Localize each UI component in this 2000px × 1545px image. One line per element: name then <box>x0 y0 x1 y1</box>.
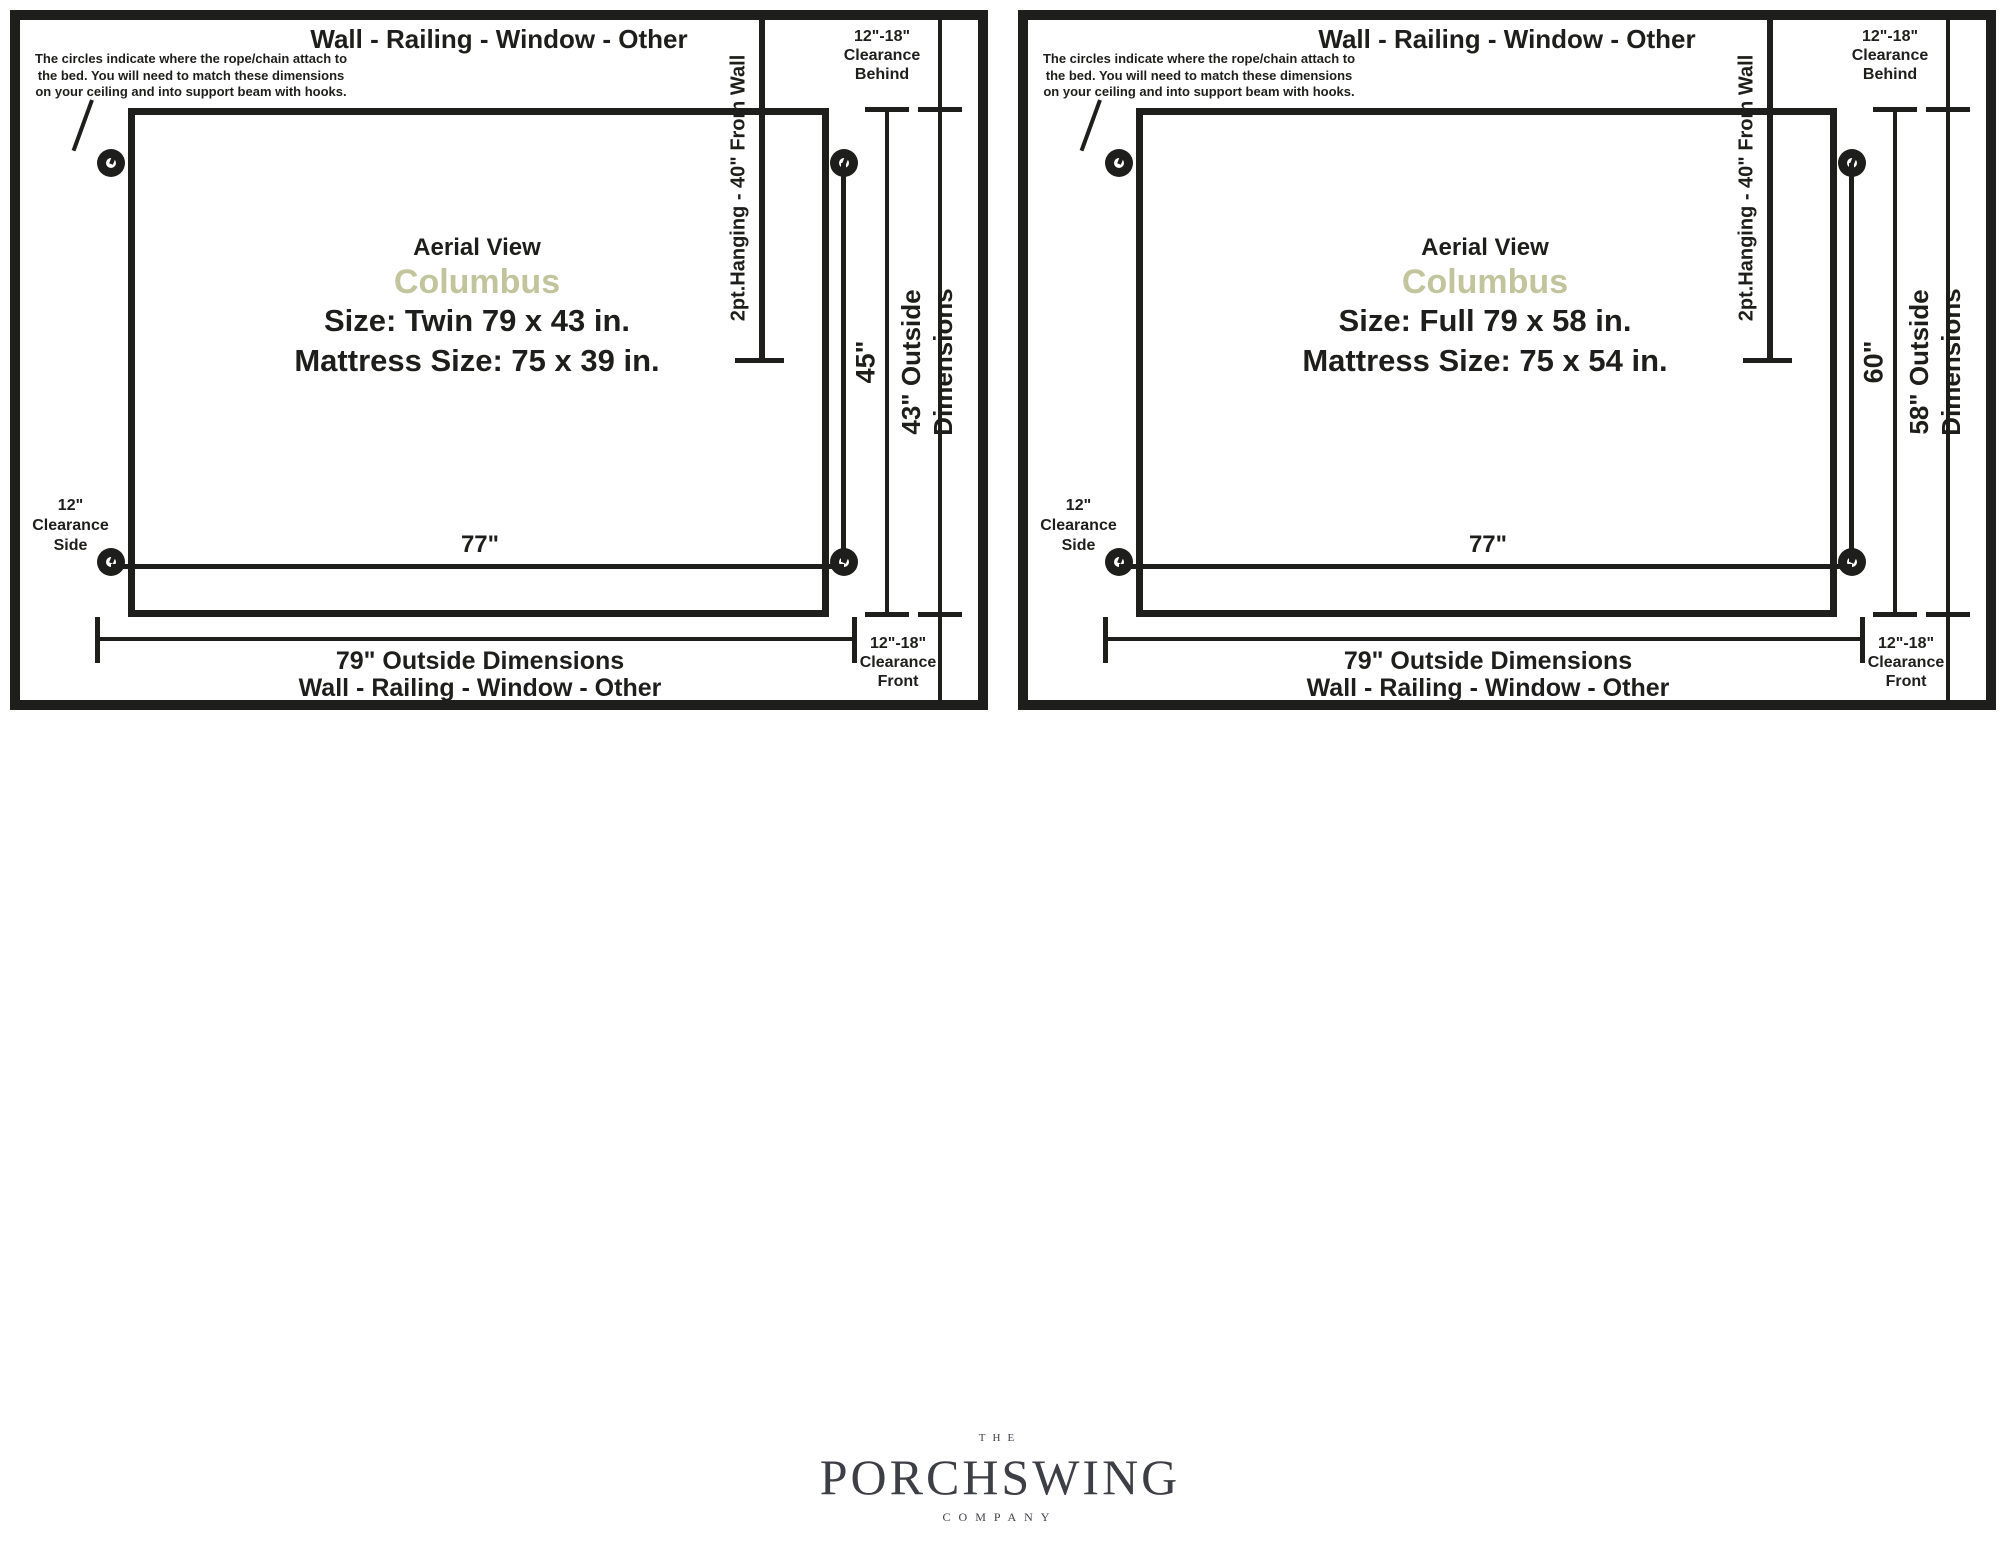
note-line: The circles indicate where the rope/chai… <box>23 51 359 68</box>
note-pointer-line <box>72 99 94 151</box>
wall-bottom-label: Wall - Railing - Window - Other <box>20 674 940 703</box>
outside-depth-tick <box>1926 107 1970 112</box>
outside-depth-tick <box>918 107 962 112</box>
view-label: Aerial View <box>1028 233 1942 263</box>
logo-name: PORCHSWING <box>0 1451 2000 1503</box>
note-line: the bed. You will need to match these di… <box>1031 68 1367 85</box>
model-name: Columbus <box>1028 263 1942 301</box>
view-label: Aerial View <box>20 233 934 263</box>
note-line: The circles indicate where the rope/chai… <box>1031 51 1367 68</box>
attach-depth-tick <box>865 107 909 112</box>
attach-point-icon <box>97 149 125 177</box>
mattress-line: Mattress Size: 75 x 39 in. <box>20 341 934 381</box>
model-name: Columbus <box>20 263 934 301</box>
clearance-behind-label: 12"-18" Clearance Behind <box>812 27 952 84</box>
outside-depth-tick <box>918 612 962 617</box>
clearance-side-label: 12" Clearance Side <box>8 496 133 556</box>
outside-width-label: 79" Outside Dimensions <box>1028 647 1948 676</box>
bed-info: Aerial View Columbus Size: Full 79 x 58 … <box>1028 233 1942 381</box>
diagram-panel-full: Wall - Railing - Window - Other The circ… <box>1018 10 1996 710</box>
clearance-behind-label: 12"-18" Clearance Behind <box>1820 27 1960 84</box>
attach-depth-tick <box>865 612 909 617</box>
outside-width-line <box>1105 637 1862 641</box>
bed-info: Aerial View Columbus Size: Twin 79 x 43 … <box>20 233 934 381</box>
attachment-note: The circles indicate where the rope/chai… <box>23 51 359 101</box>
mattress-line: Mattress Size: 75 x 54 in. <box>1028 341 1942 381</box>
outside-width-label: 79" Outside Dimensions <box>20 647 940 676</box>
dimension-sheet: Wall - Railing - Window - Other The circ… <box>0 0 2000 1545</box>
note-line: the bed. You will need to match these di… <box>23 68 359 85</box>
size-line: Size: Full 79 x 58 in. <box>1028 301 1942 341</box>
attach-width-label: 77" <box>1398 531 1578 559</box>
company-logo: THE PORCHSWING COMPANY <box>0 1432 2000 1525</box>
clearance-side-label: 12" Clearance Side <box>1016 496 1141 556</box>
logo-the: THE <box>0 1432 2000 1444</box>
attach-point-icon <box>1105 149 1133 177</box>
wall-bottom-label: Wall - Railing - Window - Other <box>1028 674 1948 703</box>
outside-depth-tick <box>1926 612 1970 617</box>
attach-depth-tick <box>1873 107 1917 112</box>
size-line: Size: Twin 79 x 43 in. <box>20 301 934 341</box>
note-line: on your ceiling and into support beam wi… <box>23 84 359 101</box>
note-line: on your ceiling and into support beam wi… <box>1031 84 1367 101</box>
logo-company: COMPANY <box>0 1510 2000 1525</box>
attach-width-line <box>1119 564 1852 569</box>
attach-width-line <box>111 564 844 569</box>
attachment-note: The circles indicate where the rope/chai… <box>1031 51 1367 101</box>
attach-depth-tick <box>1873 612 1917 617</box>
outside-width-line <box>97 637 854 641</box>
attach-width-label: 77" <box>390 531 570 559</box>
diagram-panel-twin: Wall - Railing - Window - Other The circ… <box>10 10 988 710</box>
note-pointer-line <box>1080 99 1102 151</box>
